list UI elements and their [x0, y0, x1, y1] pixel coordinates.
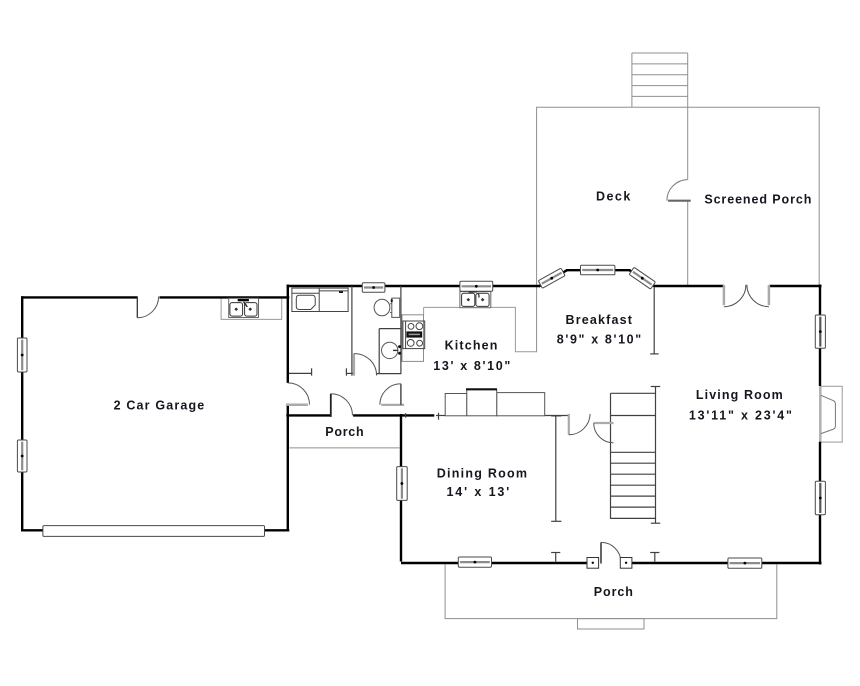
svg-text:Dining Room: Dining Room — [437, 466, 529, 480]
svg-text:Deck: Deck — [596, 189, 632, 203]
svg-text:13' x 8'10": 13' x 8'10" — [433, 359, 512, 373]
svg-text:14' x 13': 14' x 13' — [446, 485, 511, 499]
svg-text:Breakfast: Breakfast — [565, 313, 633, 327]
svg-text:Screened Porch: Screened Porch — [704, 193, 812, 207]
svg-text:8'9" x 8'10": 8'9" x 8'10" — [557, 333, 643, 347]
svg-text:13'11" x 23'4": 13'11" x 23'4" — [689, 409, 794, 423]
svg-text:2 Car Garage: 2 Car Garage — [114, 399, 206, 413]
svg-text:Kitchen: Kitchen — [445, 338, 499, 352]
svg-text:Porch: Porch — [594, 585, 634, 599]
svg-text:Living Room: Living Room — [696, 388, 784, 402]
svg-text:Porch: Porch — [325, 425, 364, 439]
